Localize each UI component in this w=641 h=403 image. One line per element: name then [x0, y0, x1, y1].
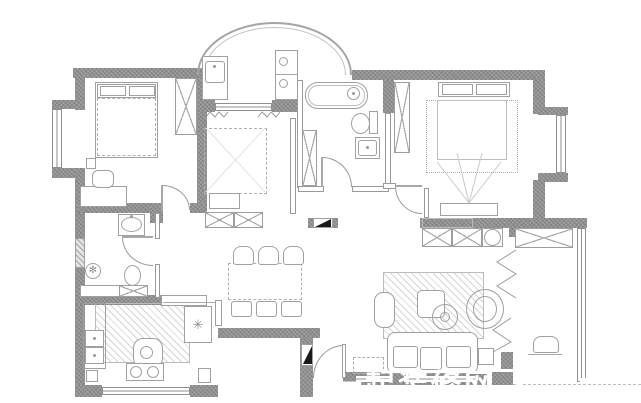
tv-fan-line-3 — [469, 153, 482, 203]
entry-zigzag-1 — [497, 250, 516, 298]
plan-annotations — [0, 0, 641, 403]
watermark-dashes — [526, 378, 590, 383]
tv-fan-line-4 — [469, 162, 501, 203]
entry-zigzag-2 — [493, 318, 511, 352]
balcony-zigzag-2 — [258, 112, 280, 117]
floor-plan-canvas: ✳ ✻ — [0, 0, 641, 403]
watermark-logo-box — [487, 369, 521, 392]
balcony-zigzag-1 — [206, 112, 228, 117]
